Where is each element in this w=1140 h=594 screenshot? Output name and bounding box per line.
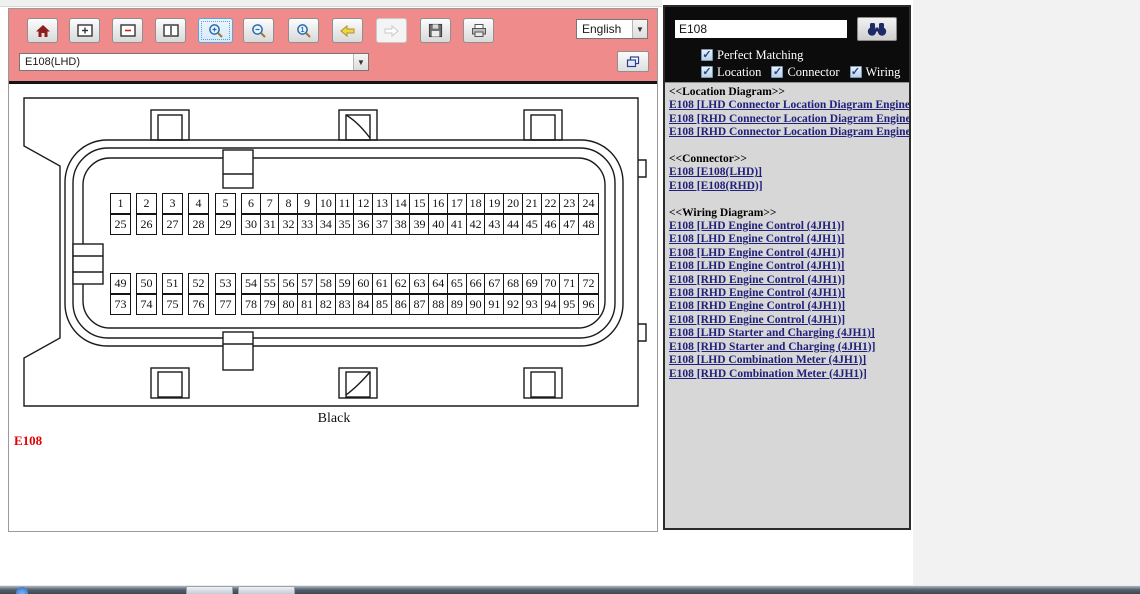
search-input[interactable] — [675, 20, 847, 38]
pin-4: 4 — [188, 193, 209, 214]
pin-45: 45 — [522, 214, 542, 235]
pin-87: 87 — [409, 294, 429, 315]
home-icon — [35, 24, 51, 38]
pin-46: 46 — [541, 214, 561, 235]
diagram-viewer-panel: 1 — [8, 8, 658, 532]
pin-58: 58 — [316, 273, 336, 294]
window-fit-button[interactable] — [155, 18, 186, 43]
checkbox-label: Perfect Matching — [717, 48, 803, 63]
pin-71: 71 — [559, 273, 579, 294]
pin-88: 88 — [428, 294, 448, 315]
viewer-toolbar: 1 — [9, 9, 657, 84]
pin-11: 11 — [335, 193, 355, 214]
window-reduce-button[interactable] — [112, 18, 143, 43]
pin-14: 14 — [391, 193, 411, 214]
result-link[interactable]: E108 [RHD Starter and Charging (4JH1)] — [669, 341, 905, 354]
checkbox-checked-icon[interactable]: ✓ — [701, 49, 713, 61]
zoom-actual-button[interactable]: 1 — [288, 18, 319, 43]
checkbox-label: Connector — [787, 65, 839, 80]
pin-85: 85 — [372, 294, 392, 315]
copy-window-button[interactable] — [617, 51, 649, 72]
pin-76: 76 — [188, 294, 209, 315]
pin-33: 33 — [297, 214, 317, 235]
back-button[interactable] — [332, 18, 363, 43]
result-link[interactable]: E108 [LHD Combination Meter (4JH1)] — [669, 354, 905, 367]
pin-52: 52 — [188, 273, 209, 294]
pin-42: 42 — [466, 214, 486, 235]
forward-button — [376, 18, 407, 43]
section-gap — [669, 381, 905, 394]
pin-50: 50 — [136, 273, 157, 294]
pin-21: 21 — [522, 193, 542, 214]
pin-16: 16 — [428, 193, 448, 214]
pin-51: 51 — [162, 273, 183, 294]
result-link[interactable]: E108 [LHD Engine Control (4JH1)] — [669, 247, 905, 260]
result-link[interactable]: E108 [E108(RHD)] — [669, 180, 905, 193]
save-icon — [428, 23, 443, 38]
pin-75: 75 — [162, 294, 183, 315]
pin-77: 77 — [215, 294, 236, 315]
print-icon — [471, 23, 487, 38]
pin-60: 60 — [353, 273, 373, 294]
pin-9: 9 — [297, 193, 317, 214]
back-icon — [340, 25, 355, 37]
result-link[interactable]: E108 [LHD Connector Location Diagram Eng… — [669, 99, 905, 112]
checkbox-perfect-matching[interactable]: ✓Perfect Matching — [701, 48, 803, 63]
pin-10: 10 — [316, 193, 336, 214]
pin-27: 27 — [162, 214, 183, 235]
window-minus-icon — [120, 24, 136, 37]
filter-row-2: ✓Location✓Connector✓Wiring — [701, 65, 910, 79]
pin-68: 68 — [503, 273, 523, 294]
checkbox-checked-icon[interactable]: ✓ — [771, 66, 783, 78]
pin-55: 55 — [260, 273, 280, 294]
result-link[interactable]: E108 [LHD Engine Control (4JH1)] — [669, 220, 905, 233]
pin-65: 65 — [447, 273, 467, 294]
pin-13: 13 — [372, 193, 392, 214]
window-plus-icon — [77, 24, 93, 37]
pin-89: 89 — [447, 294, 467, 315]
pin-80: 80 — [278, 294, 298, 315]
pin-38: 38 — [391, 214, 411, 235]
connector-diagram-panel: 1234567891011121314151617181920212223242… — [9, 84, 657, 530]
pin-28: 28 — [188, 214, 209, 235]
results-list: <<Location Diagram>>E108 [LHD Connector … — [665, 82, 909, 528]
pin-96: 96 — [578, 294, 599, 315]
pin-22: 22 — [541, 193, 561, 214]
language-select[interactable]: English ▼ — [576, 19, 648, 39]
pin-2: 2 — [136, 193, 157, 214]
zoom-out-icon — [251, 23, 267, 39]
result-link[interactable]: E108 [RHD Engine Control (4JH1)] — [669, 287, 905, 300]
binoculars-icon — [865, 21, 889, 37]
pin-25: 25 — [110, 214, 131, 235]
pin-90: 90 — [466, 294, 486, 315]
pin-34: 34 — [316, 214, 336, 235]
result-link[interactable]: E108 [LHD Starter and Charging (4JH1)] — [669, 327, 905, 340]
section-header: <<Connector>> — [669, 153, 905, 166]
pin-12: 12 — [353, 193, 373, 214]
pin-69: 69 — [522, 273, 542, 294]
connector-color-label: Black — [9, 411, 659, 427]
home-button[interactable] — [27, 18, 58, 43]
pin-82: 82 — [316, 294, 336, 315]
save-button[interactable] — [420, 18, 451, 43]
pin-47: 47 — [559, 214, 579, 235]
result-link[interactable]: E108 [E108(LHD)] — [669, 166, 905, 179]
pin-32: 32 — [278, 214, 298, 235]
window-enlarge-button[interactable] — [69, 18, 100, 43]
pin-18: 18 — [466, 193, 486, 214]
pin-15: 15 — [409, 193, 429, 214]
pin-93: 93 — [522, 294, 542, 315]
pin-1: 1 — [110, 193, 131, 214]
pin-35: 35 — [335, 214, 355, 235]
taskbar-window-button[interactable] — [238, 586, 295, 594]
connector-select-value: E108(LHD) — [25, 56, 80, 68]
result-link[interactable]: E108 [RHD Connector Location Diagram Eng… — [669, 113, 905, 126]
window-fit-icon — [163, 24, 179, 37]
pin-72: 72 — [578, 273, 599, 294]
search-header: ✓Perfect Matching ✓Location✓Connector✓Wi… — [665, 7, 909, 82]
pin-84: 84 — [353, 294, 373, 315]
pin-61: 61 — [372, 273, 392, 294]
pin-41: 41 — [447, 214, 467, 235]
checkbox-checked-icon[interactable]: ✓ — [850, 66, 862, 78]
pin-94: 94 — [541, 294, 561, 315]
pin-grid: 1234567891011121314151617181920212223242… — [9, 84, 657, 530]
start-orb-icon[interactable] — [16, 587, 28, 594]
zoom-in-icon — [208, 23, 224, 39]
pin-17: 17 — [447, 193, 467, 214]
result-link[interactable]: E108 [LHD Engine Control (4JH1)] — [669, 260, 905, 273]
pin-70: 70 — [541, 273, 561, 294]
zoom-out-button[interactable] — [243, 18, 274, 43]
pin-49: 49 — [110, 273, 131, 294]
windows-taskbar[interactable] — [0, 585, 1140, 594]
chevron-down-icon[interactable]: ▼ — [353, 54, 368, 70]
search-button[interactable] — [857, 17, 897, 41]
pin-79: 79 — [260, 294, 280, 315]
language-value: English — [582, 22, 621, 36]
pin-63: 63 — [409, 273, 429, 294]
pin-57: 57 — [297, 273, 317, 294]
forward-icon — [384, 25, 399, 37]
section-header: <<Wiring Diagram>> — [669, 207, 905, 220]
pin-23: 23 — [559, 193, 579, 214]
background-area — [913, 0, 1140, 585]
connector-select[interactable]: E108(LHD) ▼ — [19, 53, 369, 71]
zoom-actual-icon: 1 — [296, 23, 312, 39]
checkbox-label: Wiring — [866, 65, 901, 80]
pin-53: 53 — [215, 273, 236, 294]
pin-59: 59 — [335, 273, 355, 294]
result-link[interactable]: E108 [RHD Engine Control (4JH1)] — [669, 300, 905, 313]
pin-44: 44 — [503, 214, 523, 235]
pin-78: 78 — [241, 294, 261, 315]
result-link[interactable]: E108 [RHD Engine Control (4JH1)] — [669, 274, 905, 287]
pin-73: 73 — [110, 294, 131, 315]
pin-6: 6 — [241, 193, 261, 214]
taskbar-window-button[interactable] — [186, 586, 233, 594]
pin-39: 39 — [409, 214, 429, 235]
pin-48: 48 — [578, 214, 599, 235]
pin-29: 29 — [215, 214, 236, 235]
checkbox-location[interactable]: ✓Location — [701, 65, 761, 80]
checkbox-label: Location — [717, 65, 761, 80]
section-gap — [669, 193, 905, 206]
checkbox-checked-icon[interactable]: ✓ — [701, 66, 713, 78]
result-link[interactable]: E108 [RHD Combination Meter (4JH1)] — [669, 368, 905, 381]
pin-3: 3 — [162, 193, 183, 214]
filter-row-1: ✓Perfect Matching — [701, 48, 813, 62]
pin-95: 95 — [559, 294, 579, 315]
pin-30: 30 — [241, 214, 261, 235]
pin-91: 91 — [484, 294, 504, 315]
pin-19: 19 — [484, 193, 504, 214]
pin-40: 40 — [428, 214, 448, 235]
pin-62: 62 — [391, 273, 411, 294]
print-button[interactable] — [463, 18, 494, 43]
pin-67: 67 — [484, 273, 504, 294]
pin-43: 43 — [484, 214, 504, 235]
pin-92: 92 — [503, 294, 523, 315]
pin-64: 64 — [428, 273, 448, 294]
pin-5: 5 — [215, 193, 236, 214]
connector-id-label: E108 — [14, 433, 42, 449]
search-results-panel: ✓Perfect Matching ✓Location✓Connector✓Wi… — [663, 5, 911, 530]
pin-86: 86 — [391, 294, 411, 315]
copy-window-icon — [626, 56, 640, 68]
window-top-strip — [0, 0, 662, 7]
pin-74: 74 — [136, 294, 157, 315]
pin-36: 36 — [353, 214, 373, 235]
pin-26: 26 — [136, 214, 157, 235]
result-link[interactable]: E108 [RHD Connector Location Diagram Eng… — [669, 126, 905, 139]
section-header: <<Location Diagram>> — [669, 86, 905, 99]
checkbox-wiring[interactable]: ✓Wiring — [850, 65, 901, 80]
pin-81: 81 — [297, 294, 317, 315]
chevron-down-icon[interactable]: ▼ — [632, 20, 647, 38]
zoom-in-button[interactable] — [198, 18, 233, 43]
result-link[interactable]: E108 [LHD Engine Control (4JH1)] — [669, 233, 905, 246]
pin-54: 54 — [241, 273, 261, 294]
section-gap — [669, 140, 905, 153]
pin-20: 20 — [503, 193, 523, 214]
checkbox-connector[interactable]: ✓Connector — [771, 65, 839, 80]
pin-83: 83 — [335, 294, 355, 315]
svg-text:1: 1 — [300, 27, 304, 34]
result-link[interactable]: E108 [RHD Engine Control (4JH1)] — [669, 314, 905, 327]
pin-7: 7 — [260, 193, 280, 214]
pin-56: 56 — [278, 273, 298, 294]
pin-24: 24 — [578, 193, 599, 214]
pin-8: 8 — [278, 193, 298, 214]
pin-31: 31 — [260, 214, 280, 235]
pin-37: 37 — [372, 214, 392, 235]
pin-66: 66 — [466, 273, 486, 294]
